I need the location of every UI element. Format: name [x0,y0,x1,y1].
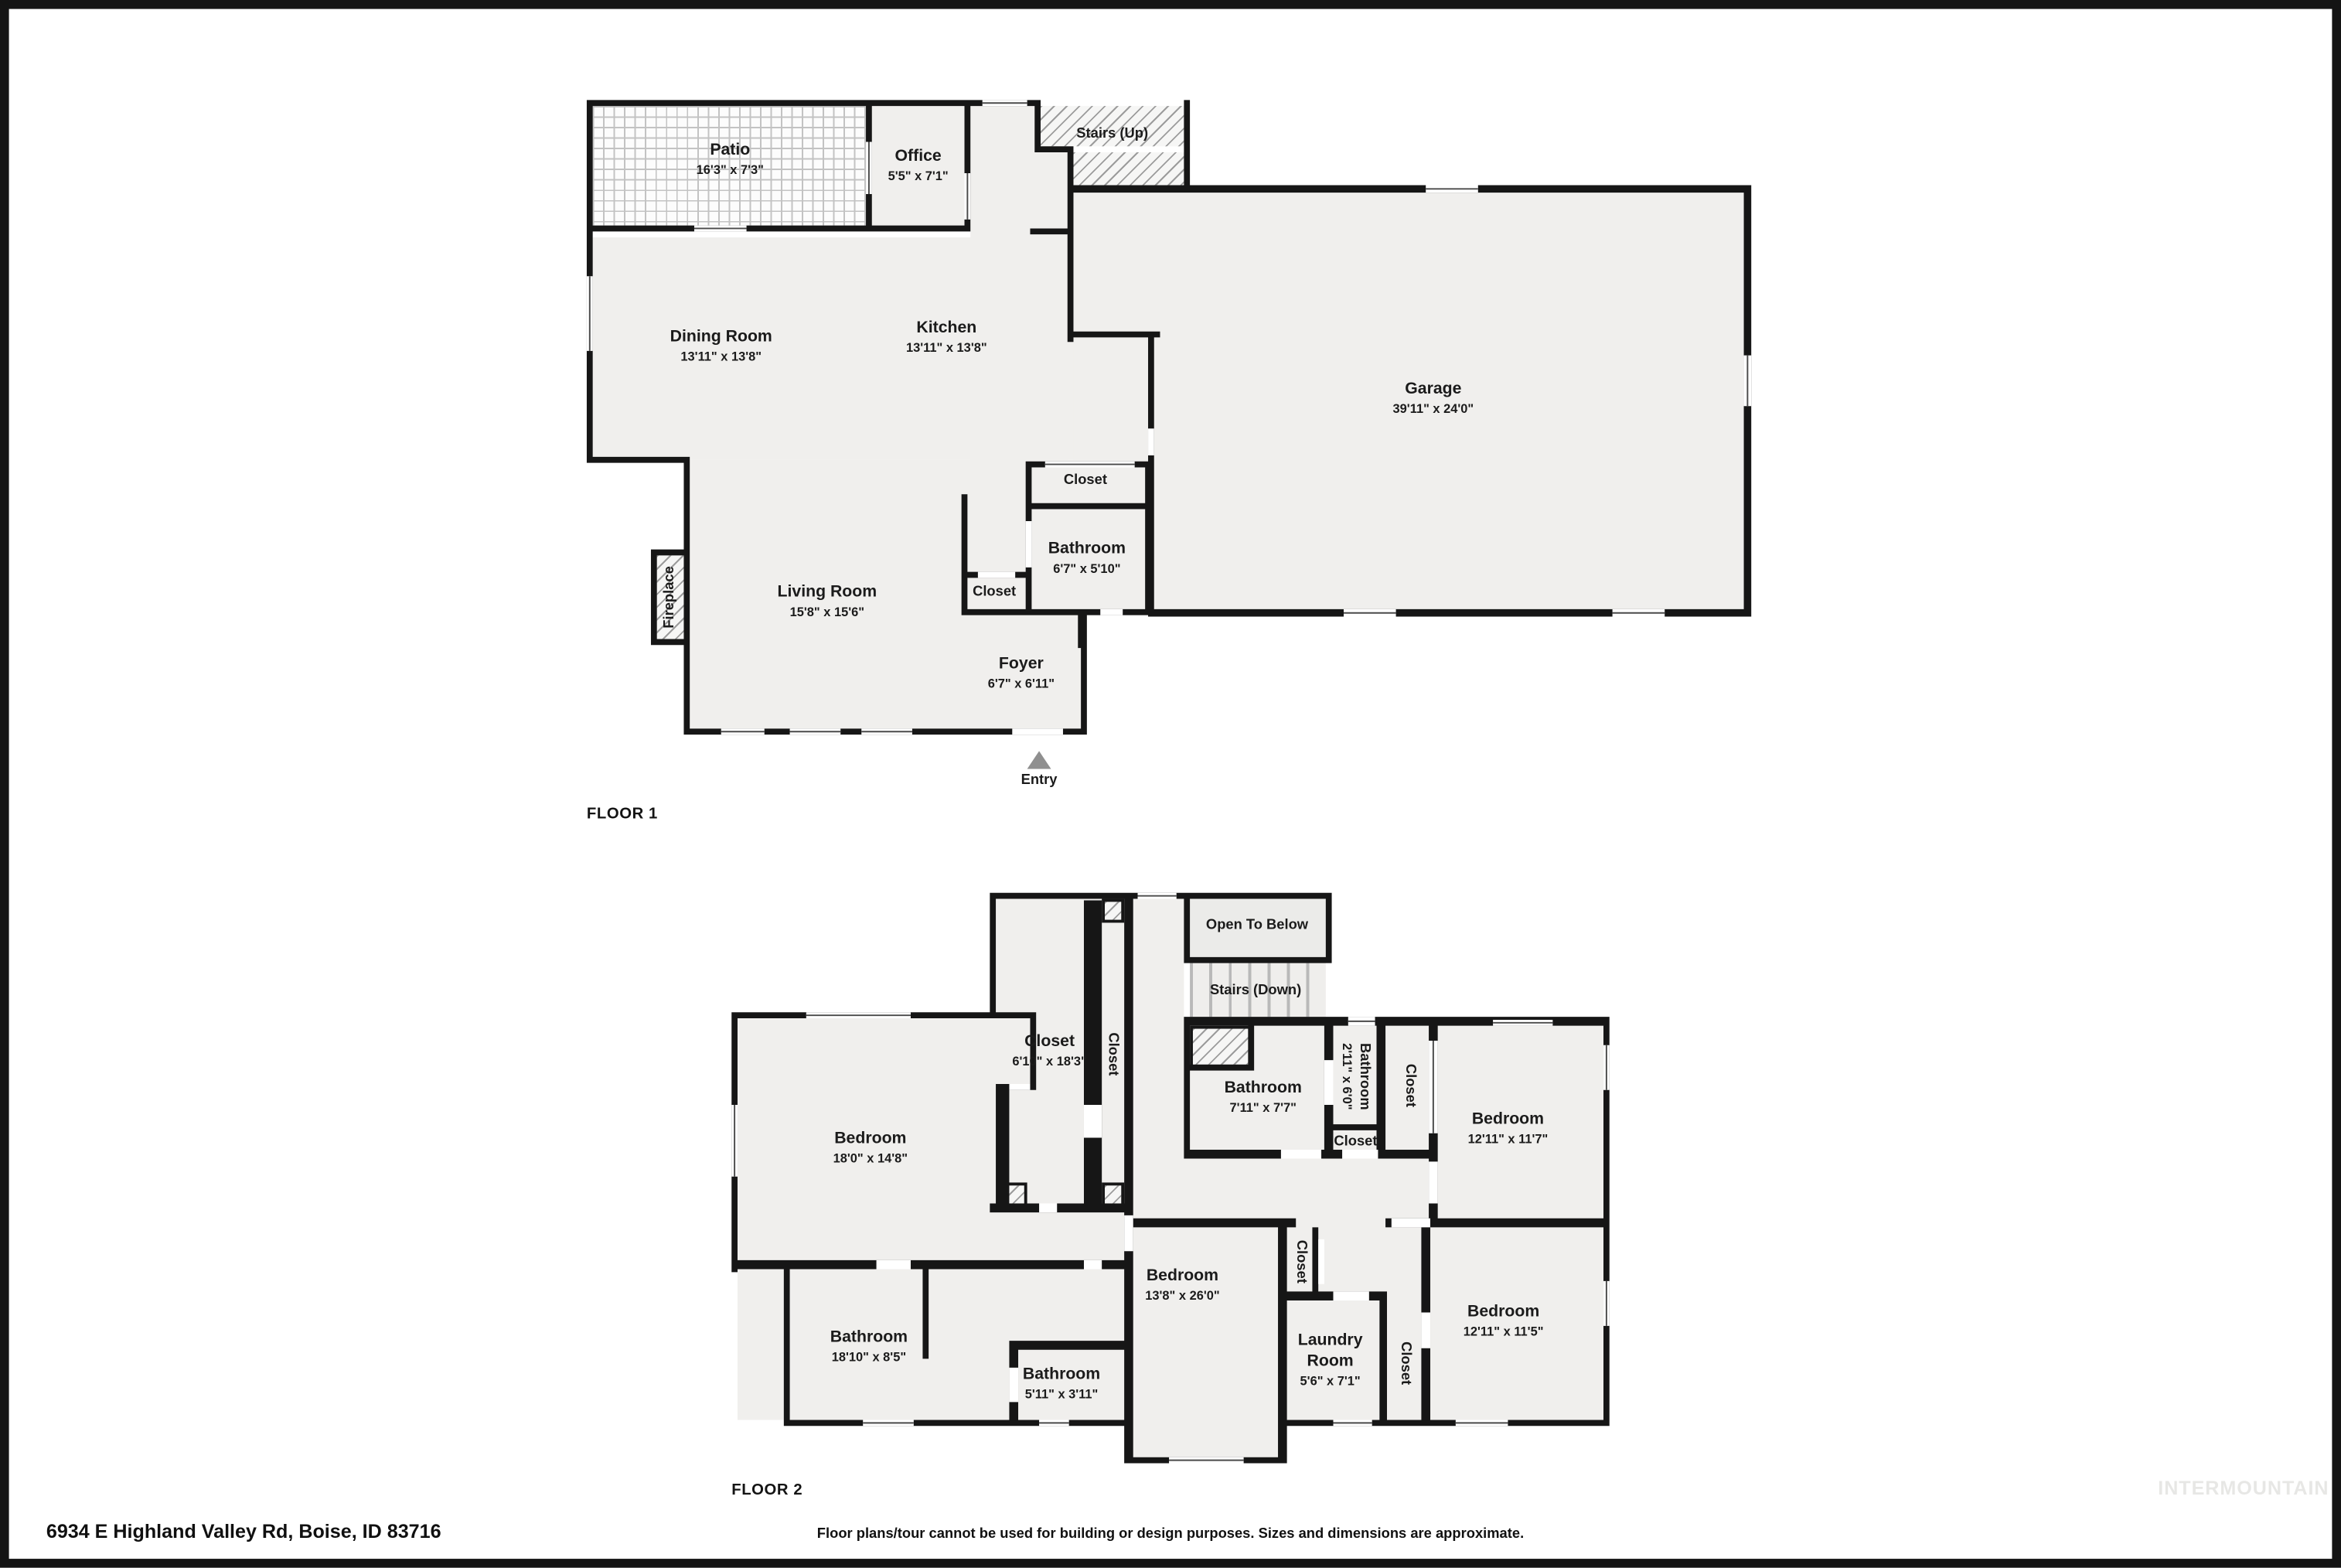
room-label-closet: Closet [1064,472,1107,489]
room-label-living: Living Room15'8" x 15'6" [778,583,877,620]
floor1-openings [587,100,1751,735]
room-label-patio: Patio16'3" x 7'3" [697,141,764,179]
floor2-window-mullions [734,896,1607,1461]
room-label-bathroom-small: Bathroom5'11" x 3'11" [1023,1365,1100,1403]
room-label-fireplace: Fireplace [662,566,680,629]
room-label-closet-narrow: Closet [1103,1032,1121,1075]
room-label-garage: Garage39'11" x 24'0" [1393,380,1474,418]
property-address: 6934 E Highland Valley Rd, Boise, ID 837… [46,1520,441,1542]
room-label-foyer: Foyer6'7" x 6'11" [988,655,1055,692]
entry-label: Entry [1021,772,1058,790]
room-label-walkin-closet: Closet6'10" x 18'3" [1012,1033,1086,1070]
watermark-logo: INTERMOUNTAIN [2158,1477,2329,1499]
room-label-bedroom-lr: Bedroom12'11" x 11'5" [1464,1303,1544,1340]
room-label-kitchen: Kitchen13'11" x 13'8" [906,319,987,356]
room-label-bathroom1: Bathroom6'7" x 5'10" [1048,540,1126,577]
open-to-below-label: Open To Below [1206,917,1308,935]
room-label-laundry: Laundry Room5'6" x 7'1" [1291,1331,1368,1389]
room-label-bedroom-left: Bedroom18'0" x 14'8" [833,1130,908,1167]
floor1-title: FLOOR 1 [587,805,658,823]
floor2-title: FLOOR 2 [731,1481,802,1499]
room-label-closet-laundry: Closet [1396,1341,1414,1385]
floor1-walls [587,100,1751,735]
disclaimer-text: Floor plans/tour cannot be used for buil… [817,1526,1524,1542]
room-label-bathroom-f2b: Bathroom2'11" x 6'0" [1338,1043,1372,1110]
floor2-openings [731,893,1609,1464]
room-label-stairs-up: Stairs (Up) [1076,125,1148,143]
room-label-closet-small: Closet [973,584,1016,602]
room-label-closet-ur: Closet [1401,1064,1419,1107]
entry-arrow-icon [1027,751,1051,769]
floor-plan-sheet: Patio16'3" x 7'3" Office5'5" x 7'1" Stai… [0,0,2341,1568]
room-label-closet-hall: Closet [1334,1133,1377,1151]
floor1-window-mullions [590,103,1748,731]
room-label-bathroom-f2a: Bathroom7'11" x 7'7" [1225,1079,1302,1116]
plan-canvas: Patio16'3" x 7'3" Office5'5" x 7'1" Stai… [0,0,2341,1568]
room-label-closet-center: Closet [1292,1240,1310,1283]
room-label-bedroom-center: Bedroom13'8" x 26'0" [1145,1267,1219,1304]
floor2-walls [731,893,1609,1464]
room-label-bedroom-ur: Bedroom12'11" x 11'7" [1468,1110,1549,1147]
room-label-bathroom-big: Bathroom18'10" x 8'5" [830,1328,908,1365]
walls-layer [0,0,2341,1568]
stairs-down-label: Stairs (Down) [1210,983,1301,1000]
room-label-dining: Dining Room13'11" x 13'8" [670,328,772,365]
room-label-office: Office5'5" x 7'1" [888,147,949,184]
